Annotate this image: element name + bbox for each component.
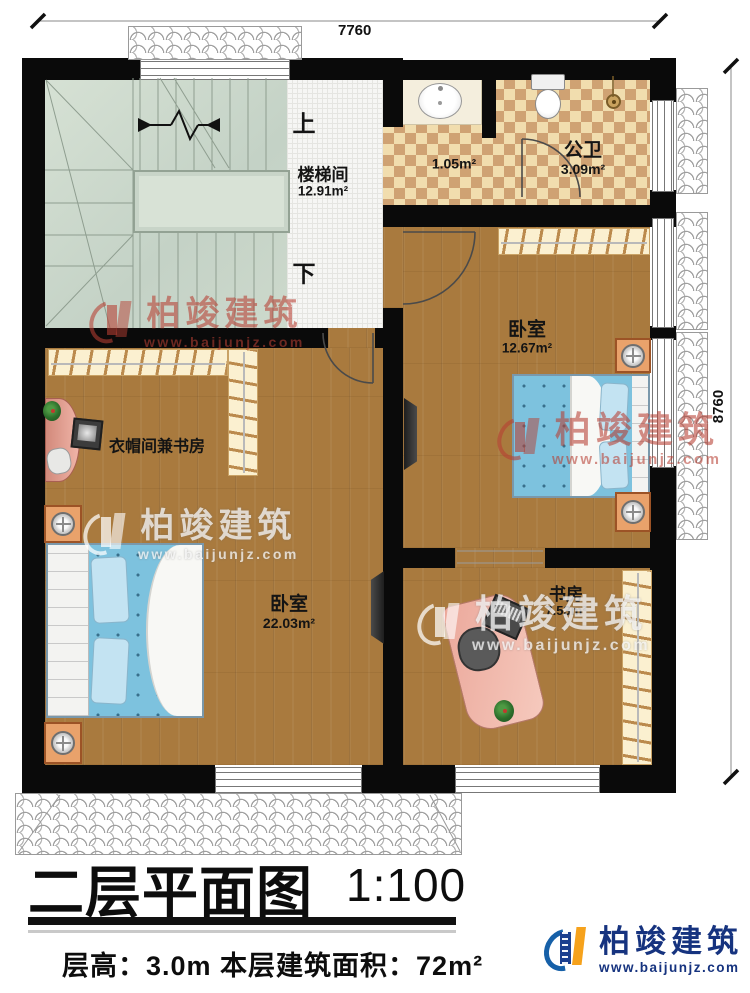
title-underline-thin (28, 930, 456, 933)
room-name: 楼梯间 (298, 167, 349, 185)
company-brand: 柏竣建筑 (599, 926, 743, 957)
room-area: 22.03m² (263, 616, 315, 631)
stair-down-label: 下 (293, 262, 316, 287)
plan-linework (0, 0, 750, 993)
room-label-stairwell: 楼梯间 12.91m² (298, 167, 349, 200)
title-underline (28, 917, 456, 925)
room-name: 卧室 (263, 595, 315, 616)
company-logo: 柏竣建筑 www.baijunjz.com (545, 922, 743, 978)
dimension-label-right: 8760 (710, 390, 727, 423)
room-label-bedroom-right: 卧室 12.67m² (502, 320, 552, 355)
dimension-label-top: 7760 (338, 22, 371, 39)
room-area: 1.05m² (432, 156, 476, 171)
room-name: 书房 (545, 586, 586, 604)
plan-scale: 1:100 (346, 858, 466, 912)
room-label-study: 书房 7.53m² (545, 586, 586, 618)
floor-info: 层高：3.0m 本层建筑面积：72m² (62, 944, 483, 983)
room-name: 卧室 (502, 320, 552, 341)
stair-arrowhead-icon (206, 118, 220, 132)
room-area: 7.53m² (545, 604, 586, 618)
room-label-bedroom-left: 卧室 22.03m² (263, 595, 315, 631)
stair-up-label: 上 (293, 112, 316, 137)
room-area: 12.91m² (298, 185, 349, 200)
room-name: 衣帽间兼书房 (109, 438, 205, 455)
room-label-cloakroom-study: 衣帽间兼书房 (109, 438, 205, 455)
room-label-public-bath: 公卫 3.09m² (561, 141, 605, 177)
stair-arrowhead-icon (138, 118, 152, 132)
floor-plan-canvas: 上 下 楼梯间 12.91m² 1.05m² 公卫 3.09m² 卧室 12.6… (0, 0, 750, 993)
room-area: 12.67m² (502, 341, 552, 356)
company-logo-icon (545, 922, 591, 978)
room-label-bath-lobby: 1.05m² (432, 156, 476, 171)
company-url: www.baijunjz.com (599, 961, 743, 975)
room-name: 公卫 (561, 141, 605, 162)
room-area: 3.09m² (561, 162, 605, 177)
